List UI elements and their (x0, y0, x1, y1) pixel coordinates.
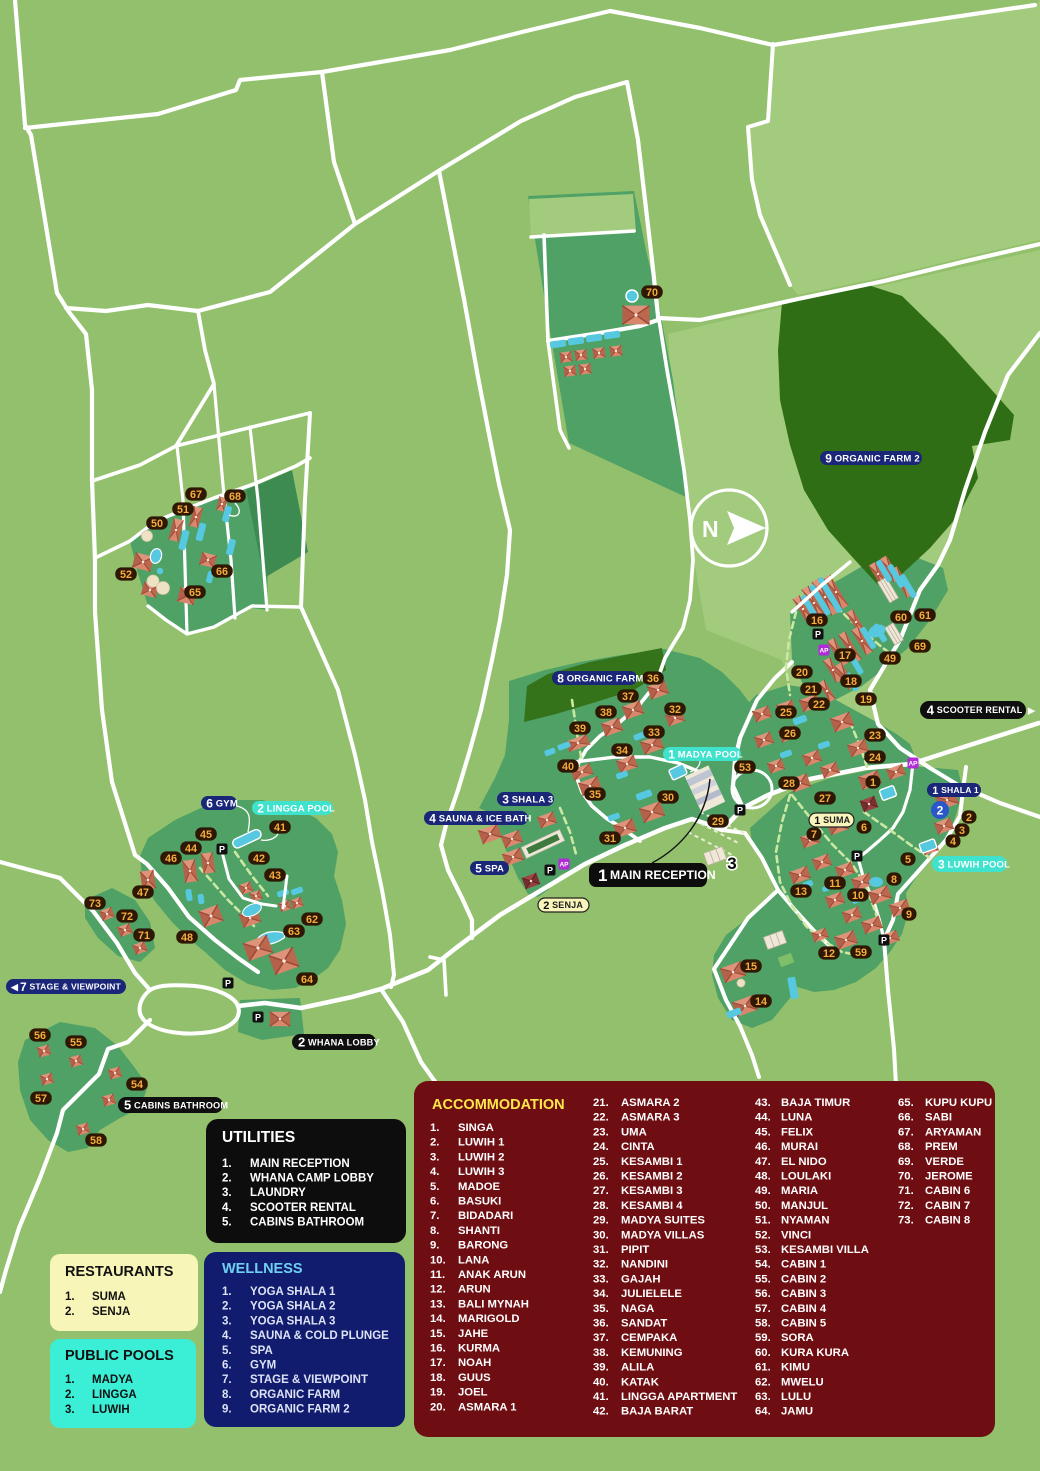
svg-text:UTILITIES: UTILITIES (222, 1129, 295, 1146)
svg-text:MADYA POOL: MADYA POOL (678, 749, 743, 760)
svg-text:SENJA: SENJA (552, 900, 583, 910)
svg-text:41: 41 (274, 822, 286, 834)
svg-text:YOGA SHALA 1: YOGA SHALA 1 (250, 1286, 336, 1298)
svg-text:28.: 28. (593, 1200, 609, 1212)
svg-text:3: 3 (959, 825, 965, 837)
svg-text:43.: 43. (755, 1097, 771, 1109)
svg-text:11: 11 (829, 878, 840, 890)
svg-text:1: 1 (814, 815, 820, 827)
svg-text:20.: 20. (430, 1401, 446, 1413)
svg-text:65: 65 (189, 587, 201, 599)
svg-text:5.: 5. (430, 1181, 439, 1193)
svg-text:9.: 9. (430, 1240, 439, 1252)
svg-text:LUWIH 2: LUWIH 2 (458, 1151, 504, 1163)
svg-text:SHALA 3: SHALA 3 (512, 794, 554, 805)
svg-text:EL NIDO: EL NIDO (781, 1156, 827, 1168)
svg-text:33: 33 (648, 727, 660, 739)
svg-text:SPA: SPA (485, 863, 504, 874)
svg-text:LINGGA APARTMENT: LINGGA APARTMENT (621, 1391, 737, 1403)
svg-text:P: P (881, 936, 887, 946)
svg-text:46.: 46. (755, 1141, 771, 1153)
svg-text:70.: 70. (898, 1171, 914, 1183)
svg-text:SPA: SPA (250, 1345, 273, 1357)
svg-text:5.: 5. (222, 1216, 232, 1228)
svg-text:66.: 66. (898, 1112, 914, 1124)
svg-text:SORA: SORA (781, 1332, 814, 1344)
svg-text:1: 1 (870, 777, 876, 789)
svg-text:68.: 68. (898, 1141, 914, 1153)
svg-text:56.: 56. (755, 1288, 771, 1300)
svg-text:65.: 65. (898, 1097, 914, 1109)
svg-text:55: 55 (70, 1037, 82, 1049)
svg-text:KESAMBI 2: KESAMBI 2 (621, 1171, 683, 1183)
svg-text:9.: 9. (222, 1404, 232, 1416)
svg-text:67: 67 (190, 489, 202, 501)
svg-text:RESTAURANTS: RESTAURANTS (65, 1264, 174, 1280)
svg-text:27: 27 (819, 793, 831, 805)
svg-text:8: 8 (891, 874, 897, 886)
svg-text:2.: 2. (65, 1306, 75, 1318)
svg-text:2.: 2. (222, 1173, 232, 1185)
svg-text:1.: 1. (65, 1291, 75, 1303)
svg-text:MANJUL: MANJUL (781, 1200, 828, 1212)
svg-text:VINCI: VINCI (781, 1229, 811, 1241)
svg-text:54: 54 (131, 1079, 143, 1091)
svg-text:KATAK: KATAK (621, 1376, 660, 1388)
svg-text:63: 63 (288, 926, 300, 938)
svg-text:72: 72 (121, 911, 133, 923)
svg-text:16: 16 (811, 615, 823, 627)
svg-text:2.: 2. (65, 1389, 75, 1401)
svg-text:BIDADARI: BIDADARI (458, 1210, 513, 1222)
svg-text:29.: 29. (593, 1215, 609, 1227)
svg-text:73: 73 (89, 898, 101, 910)
svg-text:SHALA 1: SHALA 1 (941, 785, 979, 795)
svg-text:ARUN: ARUN (458, 1284, 491, 1296)
svg-text:42.: 42. (593, 1406, 609, 1418)
svg-text:MADYA SUITES: MADYA SUITES (621, 1215, 705, 1227)
svg-text:55.: 55. (755, 1273, 771, 1285)
svg-text:25: 25 (780, 707, 792, 719)
svg-text:STAGE & VIEWPOINT: STAGE & VIEWPOINT (29, 982, 121, 992)
svg-text:61.: 61. (755, 1362, 771, 1374)
svg-text:P: P (815, 630, 821, 640)
svg-text:LANA: LANA (458, 1254, 489, 1266)
svg-text:SANDAT: SANDAT (621, 1318, 667, 1330)
svg-text:1.: 1. (222, 1286, 232, 1298)
svg-text:21.: 21. (593, 1097, 609, 1109)
svg-text:35: 35 (589, 789, 601, 801)
svg-text:CABIN 4: CABIN 4 (781, 1303, 827, 1315)
svg-text:6.: 6. (222, 1360, 232, 1372)
svg-text:21: 21 (805, 684, 817, 696)
svg-text:7: 7 (811, 829, 817, 841)
svg-text:39: 39 (574, 723, 586, 735)
svg-text:52: 52 (120, 569, 132, 581)
svg-text:AP: AP (559, 862, 569, 869)
svg-text:SUMA: SUMA (823, 815, 851, 825)
svg-text:LUWIH 3: LUWIH 3 (458, 1166, 504, 1178)
svg-text:SENJA: SENJA (92, 1306, 130, 1318)
svg-text:71.: 71. (898, 1185, 914, 1197)
svg-text:ASMARA 3: ASMARA 3 (621, 1112, 680, 1124)
svg-text:18: 18 (845, 676, 857, 688)
svg-text:34.: 34. (593, 1288, 609, 1300)
svg-text:13.: 13. (430, 1298, 446, 1310)
svg-text:54.: 54. (755, 1259, 771, 1271)
svg-text:32: 32 (669, 704, 681, 716)
svg-text:LUNA: LUNA (781, 1112, 812, 1124)
svg-text:32.: 32. (593, 1259, 609, 1271)
svg-text:2.: 2. (222, 1301, 232, 1313)
svg-text:23.: 23. (593, 1126, 609, 1138)
svg-text:AP: AP (819, 648, 829, 655)
svg-text:8.: 8. (430, 1225, 439, 1237)
svg-text:73.: 73. (898, 1215, 914, 1227)
svg-text:27.: 27. (593, 1185, 609, 1197)
svg-text:PIPIT: PIPIT (621, 1244, 649, 1256)
svg-text:62.: 62. (755, 1376, 771, 1388)
svg-text:GYM: GYM (216, 798, 238, 809)
svg-text:35.: 35. (593, 1303, 609, 1315)
svg-text:64.: 64. (755, 1406, 771, 1418)
svg-text:MAIN RECEPTION: MAIN RECEPTION (610, 868, 716, 882)
svg-text:MADYA VILLAS: MADYA VILLAS (621, 1229, 705, 1241)
svg-text:3: 3 (938, 857, 945, 871)
svg-text:14: 14 (755, 996, 767, 1008)
svg-text:ASMARA 2: ASMARA 2 (621, 1097, 680, 1109)
svg-text:SAUNA & COLD PLUNGE: SAUNA & COLD PLUNGE (250, 1330, 389, 1342)
svg-text:NAGA: NAGA (621, 1303, 654, 1315)
svg-text:4.: 4. (430, 1166, 439, 1178)
svg-text:46: 46 (165, 853, 177, 865)
svg-text:59.: 59. (755, 1332, 771, 1344)
svg-text:LINGGA: LINGGA (92, 1389, 137, 1401)
svg-text:SABI: SABI (925, 1112, 952, 1124)
svg-text:CINTA: CINTA (621, 1141, 655, 1153)
svg-text:2: 2 (298, 1035, 305, 1050)
svg-text:CABINS BATHROOM: CABINS BATHROOM (250, 1216, 364, 1228)
svg-text:49.: 49. (755, 1185, 771, 1197)
svg-text:28: 28 (783, 778, 795, 790)
svg-text:3.: 3. (430, 1151, 439, 1163)
svg-text:3: 3 (502, 792, 509, 806)
svg-text:59: 59 (855, 947, 867, 959)
svg-text:KEMUNING: KEMUNING (621, 1347, 683, 1359)
svg-text:42: 42 (253, 853, 265, 865)
svg-text:CABIN 5: CABIN 5 (781, 1318, 826, 1330)
svg-text:5: 5 (475, 861, 482, 875)
svg-text:KURMA: KURMA (458, 1343, 500, 1355)
svg-text:71: 71 (138, 930, 150, 942)
svg-text:4: 4 (950, 836, 956, 848)
svg-text:33.: 33. (593, 1273, 609, 1285)
svg-text:17: 17 (839, 650, 851, 662)
svg-text:62: 62 (306, 914, 318, 926)
svg-text:LULU: LULU (781, 1391, 811, 1403)
svg-text:MARIA: MARIA (781, 1185, 818, 1197)
svg-text:11.: 11. (430, 1269, 445, 1281)
svg-text:KESAMBI 3: KESAMBI 3 (621, 1185, 683, 1197)
svg-text:7.: 7. (430, 1210, 439, 1222)
svg-text:12: 12 (823, 948, 835, 960)
svg-text:VERDE: VERDE (925, 1156, 964, 1168)
svg-text:39.: 39. (593, 1362, 609, 1374)
svg-text:63.: 63. (755, 1391, 771, 1403)
svg-text:40: 40 (562, 761, 574, 773)
svg-text:LUWIH 1: LUWIH 1 (458, 1137, 504, 1149)
svg-text:3.: 3. (222, 1315, 232, 1327)
svg-text:4.: 4. (222, 1202, 232, 1214)
svg-text:JULIELELE: JULIELELE (621, 1288, 682, 1300)
svg-text:BAJA BARAT: BAJA BARAT (621, 1406, 693, 1418)
svg-text:ORGANIC FARM 2: ORGANIC FARM 2 (835, 453, 920, 464)
svg-text:6.: 6. (430, 1196, 439, 1208)
svg-text:LUWIH: LUWIH (92, 1404, 130, 1416)
svg-text:45.: 45. (755, 1126, 771, 1138)
svg-text:KESAMBI 4: KESAMBI 4 (621, 1200, 683, 1212)
svg-text:1.: 1. (430, 1122, 439, 1134)
svg-text:68: 68 (229, 491, 241, 503)
svg-text:KIMU: KIMU (781, 1362, 810, 1374)
svg-text:SUMA: SUMA (92, 1291, 126, 1303)
svg-text:CABINS BATHROOM: CABINS BATHROOM (134, 1100, 228, 1110)
svg-text:29: 29 (712, 816, 724, 828)
svg-text:30.: 30. (593, 1229, 609, 1241)
svg-text:16.: 16. (430, 1343, 446, 1355)
svg-text:58.: 58. (755, 1318, 771, 1330)
svg-text:KURA KURA: KURA KURA (781, 1347, 849, 1359)
svg-text:17.: 17. (430, 1357, 446, 1369)
svg-text:64: 64 (301, 974, 313, 986)
svg-text:47: 47 (137, 887, 149, 899)
svg-text:N: N (702, 516, 719, 542)
svg-text:18.: 18. (430, 1372, 446, 1384)
svg-text:38.: 38. (593, 1347, 609, 1359)
svg-text:53.: 53. (755, 1244, 771, 1256)
svg-text:BAJA TIMUR: BAJA TIMUR (781, 1097, 850, 1109)
svg-text:P: P (547, 866, 553, 876)
svg-text:24.: 24. (593, 1141, 609, 1153)
svg-text:2.: 2. (430, 1137, 439, 1149)
svg-text:FELIX: FELIX (781, 1126, 813, 1138)
svg-text:LINGGA POOL: LINGGA POOL (267, 803, 335, 814)
svg-text:ALILA: ALILA (621, 1362, 654, 1374)
svg-text:CABIN 7: CABIN 7 (925, 1200, 970, 1212)
svg-text:JAHE: JAHE (458, 1328, 489, 1340)
svg-text:19: 19 (860, 694, 872, 706)
svg-text:MARIGOLD: MARIGOLD (458, 1313, 520, 1325)
svg-text:ANAK ARUN: ANAK ARUN (458, 1269, 526, 1281)
svg-text:58: 58 (90, 1135, 102, 1147)
svg-text:WELLNESS: WELLNESS (222, 1261, 303, 1277)
svg-text:51: 51 (177, 504, 189, 516)
svg-text:SHANTI: SHANTI (458, 1225, 500, 1237)
svg-text:CABIN 2: CABIN 2 (781, 1273, 826, 1285)
svg-text:4: 4 (927, 703, 935, 718)
svg-text:56: 56 (34, 1030, 46, 1042)
svg-text:1.: 1. (222, 1158, 232, 1170)
svg-text:69: 69 (914, 641, 926, 653)
svg-text:ASMARA 1: ASMARA 1 (458, 1401, 517, 1413)
svg-text:◀: ◀ (10, 982, 19, 992)
svg-text:ORGANIC FARM 2: ORGANIC FARM 2 (250, 1404, 350, 1416)
svg-text:72.: 72. (898, 1200, 914, 1212)
svg-text:KESAMBI VILLA: KESAMBI VILLA (781, 1244, 869, 1256)
svg-text:WHANA CAMP LOBBY: WHANA CAMP LOBBY (250, 1173, 374, 1185)
svg-text:49: 49 (884, 653, 896, 665)
svg-text:GUUS: GUUS (458, 1372, 491, 1384)
svg-text:PUBLIC POOLS: PUBLIC POOLS (65, 1348, 174, 1364)
svg-text:45: 45 (200, 829, 212, 841)
svg-text:1: 1 (598, 866, 607, 885)
svg-text:25.: 25. (593, 1156, 609, 1168)
svg-text:7.: 7. (222, 1374, 232, 1386)
svg-text:P: P (225, 979, 231, 989)
svg-text:67.: 67. (898, 1126, 914, 1138)
svg-text:1: 1 (932, 785, 938, 797)
svg-text:KUPU KUPU: KUPU KUPU (925, 1097, 992, 1109)
svg-text:2: 2 (937, 804, 944, 818)
svg-text:GAJAH: GAJAH (621, 1273, 661, 1285)
svg-text:48.: 48. (755, 1171, 771, 1183)
svg-text:37: 37 (622, 691, 634, 703)
svg-text:41.: 41. (593, 1391, 609, 1403)
svg-text:CEMPAKA: CEMPAKA (621, 1332, 677, 1344)
svg-text:STAGE & VIEWPOINT: STAGE & VIEWPOINT (250, 1374, 368, 1386)
svg-text:14.: 14. (430, 1313, 446, 1325)
svg-text:WHANA LOBBY: WHANA LOBBY (308, 1037, 380, 1047)
svg-text:5: 5 (124, 1098, 131, 1113)
svg-text:15: 15 (745, 961, 757, 973)
svg-text:LAUNDRY: LAUNDRY (250, 1187, 306, 1199)
svg-text:8.: 8. (222, 1389, 232, 1401)
svg-text:10.: 10. (430, 1254, 446, 1266)
svg-text:31: 31 (604, 833, 616, 845)
svg-text:CABIN 1: CABIN 1 (781, 1259, 826, 1271)
svg-text:UMA: UMA (621, 1126, 647, 1138)
svg-text:70: 70 (646, 287, 658, 299)
svg-text:23: 23 (869, 730, 881, 742)
svg-text:SAUNA & ICE BATH: SAUNA & ICE BATH (439, 813, 532, 824)
svg-text:40.: 40. (593, 1376, 609, 1388)
svg-text:31.: 31. (593, 1244, 609, 1256)
svg-text:P: P (219, 845, 225, 855)
svg-text:4: 4 (429, 811, 436, 825)
svg-text:51.: 51. (755, 1215, 771, 1227)
svg-text:YOGA SHALA 3: YOGA SHALA 3 (250, 1315, 335, 1327)
svg-text:MWELU: MWELU (781, 1376, 824, 1388)
svg-text:ARYAMAN: ARYAMAN (925, 1126, 981, 1138)
svg-text:NYAMAN: NYAMAN (781, 1215, 830, 1227)
svg-text:5: 5 (905, 854, 911, 866)
svg-text:19.: 19. (430, 1387, 446, 1399)
svg-text:MAIN RECEPTION: MAIN RECEPTION (250, 1158, 350, 1170)
svg-text:48: 48 (181, 932, 193, 944)
svg-text:8: 8 (557, 671, 564, 685)
svg-text:2: 2 (543, 900, 549, 912)
svg-text:9: 9 (825, 451, 832, 465)
svg-text:9: 9 (906, 909, 912, 921)
svg-text:57.: 57. (755, 1303, 771, 1315)
svg-text:AP: AP (908, 761, 918, 768)
svg-text:JOEL: JOEL (458, 1387, 488, 1399)
svg-text:10: 10 (852, 890, 864, 902)
svg-text:37.: 37. (593, 1332, 609, 1344)
svg-text:P: P (737, 806, 743, 816)
svg-text:22.: 22. (593, 1112, 609, 1124)
svg-text:CABIN 6: CABIN 6 (925, 1185, 970, 1197)
svg-text:5.: 5. (222, 1345, 232, 1357)
svg-text:15.: 15. (430, 1328, 446, 1340)
svg-text:53: 53 (739, 762, 751, 774)
svg-text:MURAI: MURAI (781, 1141, 818, 1153)
svg-text:LOULAKI: LOULAKI (781, 1171, 831, 1183)
svg-text:LUWIH POOL: LUWIH POOL (947, 859, 1010, 870)
svg-text:KESAMBI 1: KESAMBI 1 (621, 1156, 683, 1168)
svg-text:MADOE: MADOE (458, 1181, 501, 1193)
svg-text:44: 44 (185, 843, 197, 855)
svg-text:NANDINI: NANDINI (621, 1259, 668, 1271)
svg-text:69.: 69. (898, 1156, 914, 1168)
svg-text:50.: 50. (755, 1200, 771, 1212)
svg-text:26: 26 (784, 728, 796, 740)
svg-text:60: 60 (895, 612, 907, 624)
svg-text:20: 20 (796, 667, 808, 679)
svg-text:1: 1 (668, 747, 675, 761)
svg-text:4.: 4. (222, 1330, 232, 1342)
svg-text:BASUKI: BASUKI (458, 1196, 501, 1208)
svg-text:P: P (854, 852, 860, 862)
svg-text:36: 36 (647, 673, 659, 685)
svg-text:43: 43 (269, 870, 281, 882)
svg-text:36.: 36. (593, 1318, 609, 1330)
svg-text:24: 24 (869, 752, 881, 764)
svg-text:3.: 3. (65, 1404, 75, 1416)
svg-text:13: 13 (795, 886, 807, 898)
svg-text:NOAH: NOAH (458, 1357, 491, 1369)
svg-text:SCOOTER RENTAL: SCOOTER RENTAL (937, 705, 1023, 715)
svg-text:44.: 44. (755, 1112, 771, 1124)
svg-text:CABIN 8: CABIN 8 (925, 1215, 970, 1227)
svg-text:CABIN 3: CABIN 3 (781, 1288, 826, 1300)
svg-text:60.: 60. (755, 1347, 771, 1359)
svg-text:SCOOTER RENTAL: SCOOTER RENTAL (250, 1202, 356, 1214)
svg-text:ACCOMMODATION: ACCOMMODATION (432, 1097, 565, 1113)
svg-text:7: 7 (20, 980, 27, 994)
svg-text:MADYA: MADYA (92, 1374, 133, 1386)
svg-text:52.: 52. (755, 1229, 771, 1241)
svg-text:BARONG: BARONG (458, 1240, 508, 1252)
svg-text:JEROME: JEROME (925, 1171, 973, 1183)
svg-text:3.: 3. (222, 1187, 232, 1199)
svg-text:22: 22 (813, 699, 825, 711)
svg-text:30: 30 (662, 792, 674, 804)
svg-text:47.: 47. (755, 1156, 771, 1168)
svg-text:57: 57 (35, 1093, 47, 1105)
svg-text:P: P (255, 1013, 261, 1023)
svg-text:1.: 1. (65, 1374, 75, 1386)
svg-text:6: 6 (206, 796, 213, 810)
svg-text:50: 50 (151, 518, 163, 530)
svg-text:BALI MYNAH: BALI MYNAH (458, 1298, 529, 1310)
svg-text:12.: 12. (430, 1284, 446, 1296)
svg-text:6: 6 (861, 822, 867, 834)
svg-text:38: 38 (600, 707, 612, 719)
svg-text:2: 2 (966, 812, 972, 824)
svg-text:▶: ▶ (1027, 706, 1036, 716)
svg-text:GYM: GYM (250, 1360, 276, 1372)
